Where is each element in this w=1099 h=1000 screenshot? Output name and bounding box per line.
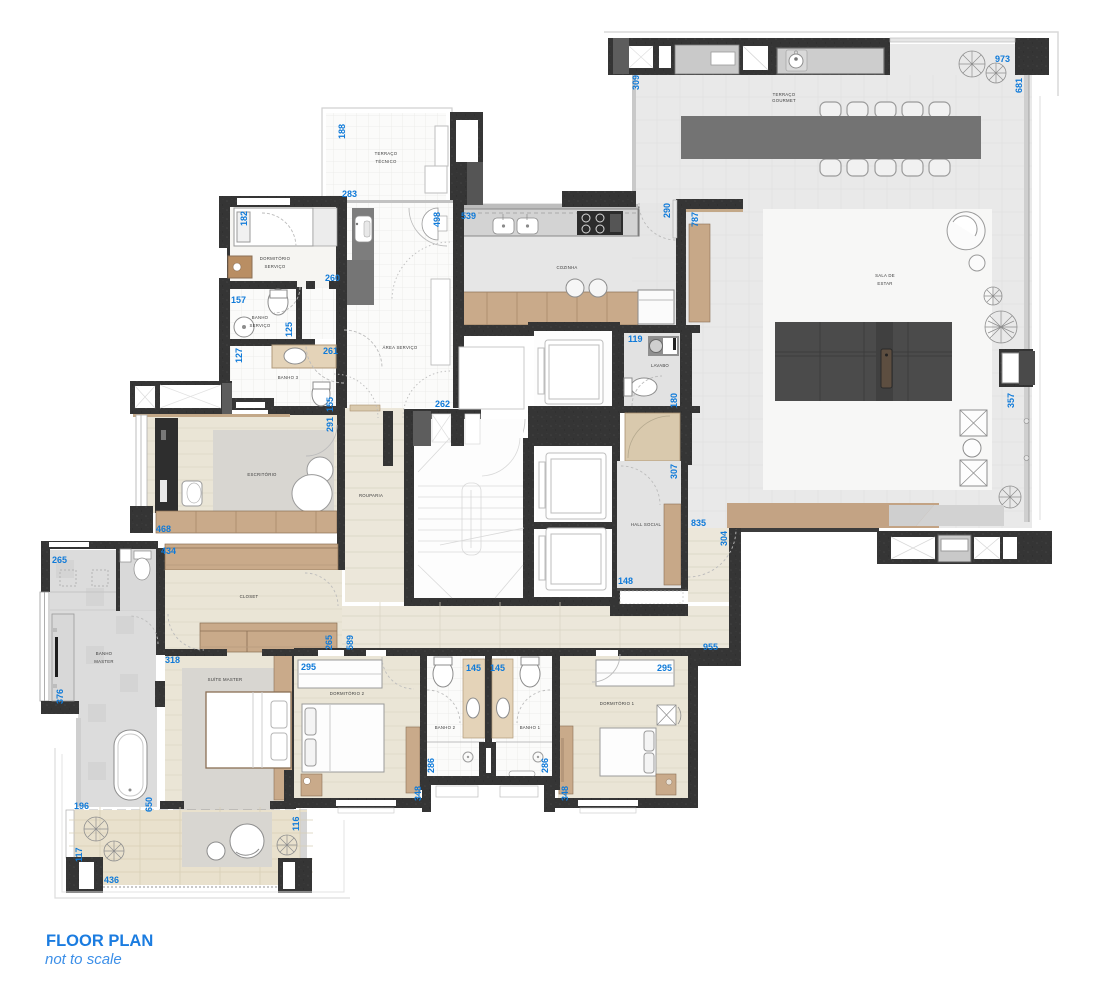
svg-text:BANHO: BANHO — [96, 651, 113, 656]
svg-text:ESCRITÓRIO: ESCRITÓRIO — [247, 472, 277, 477]
svg-text:BANHO 2: BANHO 2 — [435, 725, 456, 730]
svg-text:295: 295 — [301, 662, 316, 672]
svg-text:119: 119 — [628, 334, 643, 344]
svg-text:ÁREA SERVIÇO: ÁREA SERVIÇO — [383, 345, 418, 350]
svg-text:291: 291 — [325, 417, 335, 432]
svg-text:286: 286 — [540, 758, 550, 773]
svg-text:265: 265 — [52, 555, 67, 565]
svg-text:TÉCNICO: TÉCNICO — [375, 159, 396, 164]
svg-text:498: 498 — [432, 212, 442, 227]
svg-text:304: 304 — [719, 531, 729, 546]
svg-text:116: 116 — [291, 816, 301, 831]
svg-text:155: 155 — [325, 397, 335, 412]
svg-text:117: 117 — [74, 847, 84, 862]
svg-text:FLOOR PLAN: FLOOR PLAN — [46, 932, 153, 950]
svg-text:BANHO 3: BANHO 3 — [278, 375, 299, 380]
svg-text:260: 260 — [325, 273, 340, 283]
svg-text:681: 681 — [1014, 78, 1024, 93]
svg-text:348: 348 — [413, 786, 423, 801]
svg-text:196: 196 — [74, 801, 89, 811]
svg-text:SALA DE: SALA DE — [875, 273, 895, 278]
svg-text:376: 376 — [55, 689, 65, 704]
svg-text:955: 955 — [703, 642, 718, 652]
svg-text:357: 357 — [1006, 393, 1016, 408]
svg-text:318: 318 — [165, 655, 180, 665]
svg-text:127: 127 — [234, 348, 244, 363]
svg-text:157: 157 — [231, 295, 246, 305]
svg-text:SUÍTE MASTER: SUÍTE MASTER — [208, 677, 243, 682]
svg-text:348: 348 — [560, 786, 570, 801]
svg-text:188: 188 — [337, 124, 347, 139]
svg-text:262: 262 — [435, 399, 450, 409]
svg-text:182: 182 — [239, 211, 249, 226]
svg-text:125: 125 — [284, 322, 294, 337]
svg-text:787: 787 — [690, 212, 700, 227]
svg-text:973: 973 — [995, 54, 1010, 64]
svg-text:468: 468 — [156, 524, 171, 534]
svg-text:295: 295 — [657, 663, 672, 673]
svg-text:261: 261 — [323, 346, 338, 356]
svg-text:309: 309 — [631, 75, 641, 90]
svg-text:COZINHA: COZINHA — [556, 265, 577, 270]
svg-text:307: 307 — [669, 464, 679, 479]
svg-text:283: 283 — [342, 189, 357, 199]
svg-text:CLOSET: CLOSET — [240, 594, 259, 599]
svg-text:434: 434 — [161, 546, 176, 556]
svg-text:not to scale: not to scale — [45, 951, 122, 968]
svg-text:GOURMET: GOURMET — [772, 98, 796, 103]
svg-text:ESTAR: ESTAR — [877, 281, 892, 286]
svg-text:DORMITÓRIO 1: DORMITÓRIO 1 — [600, 701, 635, 706]
svg-text:265: 265 — [324, 635, 334, 650]
svg-text:835: 835 — [691, 518, 706, 528]
svg-text:145: 145 — [490, 663, 505, 673]
svg-text:436: 436 — [104, 875, 119, 885]
svg-text:145: 145 — [466, 663, 481, 673]
svg-text:539: 539 — [461, 211, 476, 221]
svg-text:BANHO: BANHO — [252, 315, 269, 320]
svg-text:290: 290 — [662, 203, 672, 218]
svg-text:SERVIÇO: SERVIÇO — [249, 323, 270, 328]
svg-text:LAVABO: LAVABO — [651, 363, 669, 368]
svg-text:180: 180 — [669, 393, 679, 408]
svg-text:286: 286 — [426, 758, 436, 773]
svg-text:DORMITÓRIO: DORMITÓRIO — [260, 256, 291, 261]
svg-text:MASTER: MASTER — [94, 659, 113, 664]
svg-text:148: 148 — [618, 576, 633, 586]
svg-text:HALL SOCIAL: HALL SOCIAL — [631, 522, 662, 527]
svg-text:ROUPARIA: ROUPARIA — [359, 493, 383, 498]
svg-text:TERRAÇO: TERRAÇO — [375, 151, 398, 156]
svg-text:TERRAÇO: TERRAÇO — [773, 92, 796, 97]
svg-text:650: 650 — [144, 797, 154, 812]
svg-text:BANHO 1: BANHO 1 — [520, 725, 541, 730]
svg-text:SERVIÇO: SERVIÇO — [264, 264, 285, 269]
svg-text:589: 589 — [345, 635, 355, 650]
svg-text:DORMITÓRIO 2: DORMITÓRIO 2 — [330, 691, 365, 696]
